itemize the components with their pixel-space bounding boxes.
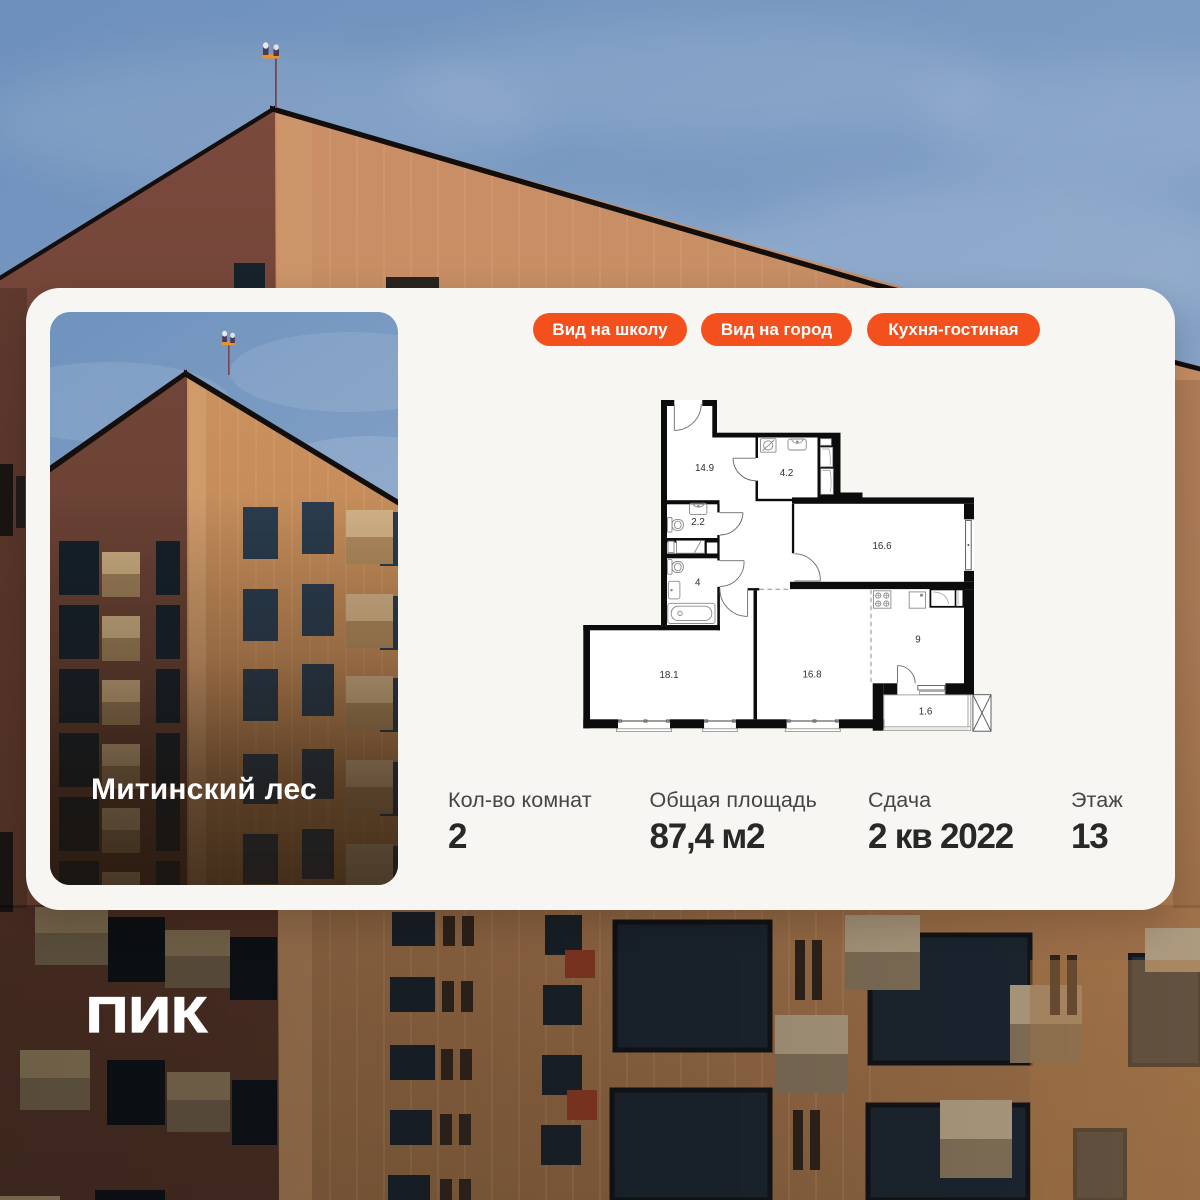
svg-text:16.8: 16.8 bbox=[802, 670, 822, 681]
svg-text:16.6: 16.6 bbox=[872, 541, 892, 552]
svg-text:4: 4 bbox=[695, 577, 701, 588]
svg-text:2.2: 2.2 bbox=[691, 517, 705, 528]
svg-text:4.2: 4.2 bbox=[780, 468, 794, 479]
svg-text:9: 9 bbox=[915, 635, 920, 646]
svg-text:18.1: 18.1 bbox=[659, 670, 678, 681]
svg-text:1.6: 1.6 bbox=[919, 706, 933, 717]
svg-text:14.9: 14.9 bbox=[695, 463, 714, 474]
